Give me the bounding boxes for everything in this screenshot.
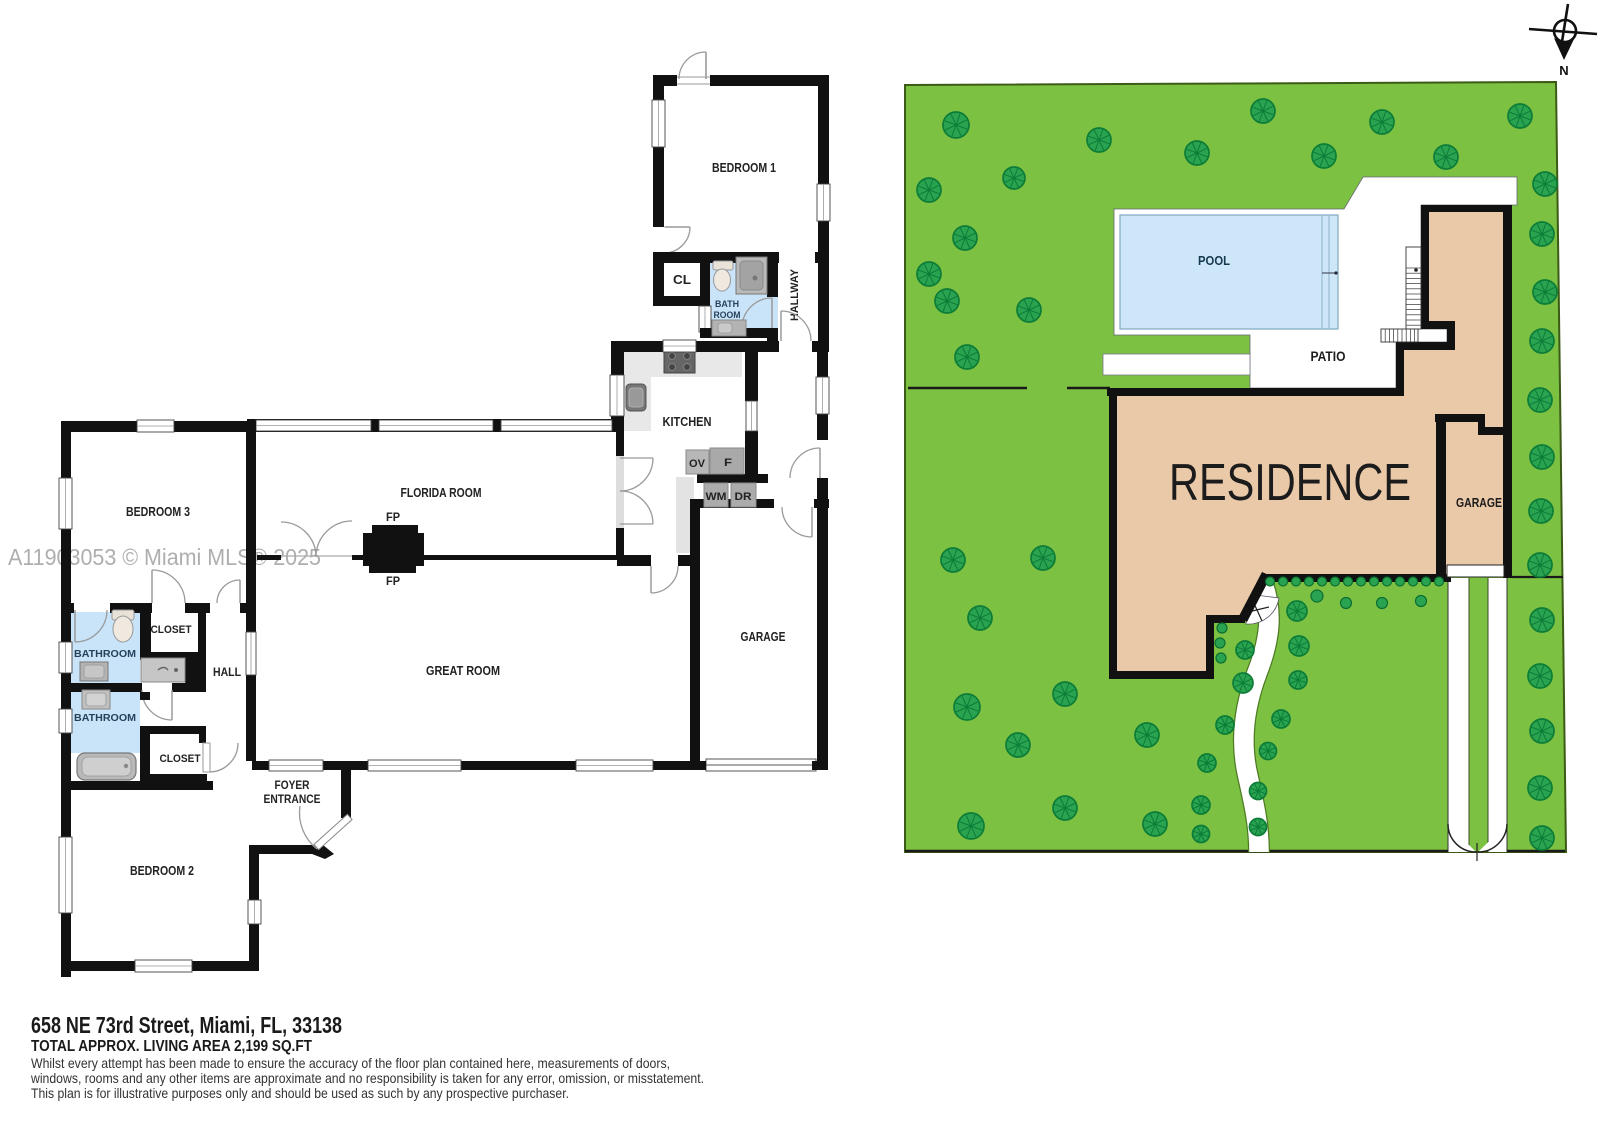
svg-text:GARAGE: GARAGE — [1456, 495, 1502, 510]
svg-text:KITCHEN: KITCHEN — [663, 414, 712, 429]
svg-text:FP: FP — [386, 576, 400, 588]
svg-text:RESIDENCE: RESIDENCE — [1169, 454, 1411, 512]
svg-text:N: N — [1559, 63, 1568, 78]
svg-text:TOTAL APPROX. LIVING AREA 2,19: TOTAL APPROX. LIVING AREA 2,199 SQ.FT — [31, 1038, 312, 1055]
svg-text:BATHROOM: BATHROOM — [74, 649, 136, 660]
svg-text:GARAGE: GARAGE — [741, 630, 786, 644]
svg-text:658 NE 73rd Street, Miami, FL,: 658 NE 73rd Street, Miami, FL, 33138 — [31, 1012, 342, 1038]
svg-text:ENTRANCE: ENTRANCE — [264, 794, 321, 806]
svg-text:BEDROOM 1: BEDROOM 1 — [712, 160, 776, 175]
svg-text:BATH: BATH — [715, 299, 739, 309]
svg-text:CLOSET: CLOSET — [160, 753, 201, 765]
svg-text:CL: CL — [673, 273, 691, 287]
svg-text:PATIO: PATIO — [1311, 349, 1346, 364]
svg-text:BEDROOM 3: BEDROOM 3 — [126, 504, 190, 519]
svg-text:OV: OV — [689, 458, 706, 470]
svg-text:FP: FP — [386, 512, 400, 524]
svg-text:WM: WM — [706, 491, 727, 503]
svg-text:FLORIDA ROOM: FLORIDA ROOM — [401, 486, 482, 500]
svg-text:POOL: POOL — [1198, 254, 1230, 268]
svg-text:HALL: HALL — [213, 667, 241, 679]
svg-text:GREAT ROOM: GREAT ROOM — [426, 664, 500, 678]
svg-text:DR: DR — [735, 491, 752, 503]
svg-text:FOYER: FOYER — [275, 780, 311, 792]
svg-text:BEDROOM 2: BEDROOM 2 — [130, 863, 194, 878]
svg-text:CLOSET: CLOSET — [151, 624, 192, 636]
svg-text:This plan is for illustrative: This plan is for illustrative purposes o… — [31, 1085, 569, 1101]
svg-text:Whilst every attempt has been: Whilst every attempt has been made to en… — [31, 1055, 670, 1071]
svg-text:ROOM: ROOM — [714, 310, 741, 320]
svg-text:windows, rooms and any other i: windows, rooms and any other items are a… — [30, 1070, 704, 1086]
svg-text:F: F — [724, 457, 732, 469]
svg-text:BATHROOM: BATHROOM — [74, 713, 136, 724]
